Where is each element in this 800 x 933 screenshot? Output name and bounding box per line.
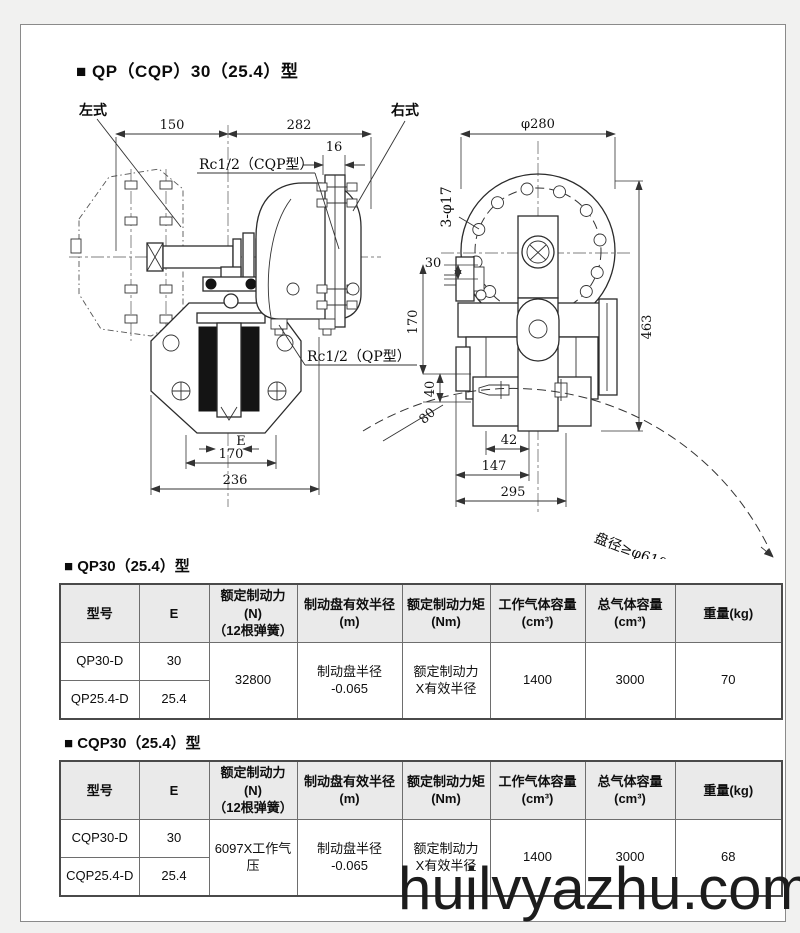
e-cell: 30 [139, 642, 209, 680]
label-left-type: 左式 [78, 102, 107, 118]
col-radius: 制动盘有效半径 (m) [297, 761, 402, 819]
left-view: 左式 右式 150 282 16 Rc1/2（CQP型） Rc1/2（QP型） … [69, 102, 419, 507]
page-title: ■ QP（CQP）30（25.4）型 [76, 57, 298, 82]
dim-30: 30 [425, 256, 442, 271]
label-right-type: 右式 [390, 102, 419, 118]
port-label-qp: Rc1/2（QP型） [307, 349, 411, 365]
section-title-cqp: ■ CQP30（25.4）型 [64, 732, 201, 753]
model-cell: QP25.4-D [60, 680, 139, 719]
radius-cell: 制动盘半径 -0.065 [297, 642, 402, 719]
dim-40: 40 [423, 381, 438, 398]
page-frame: ■ QP（CQP）30（25.4）型 [20, 24, 786, 922]
catalog-page: { "page": { "title": "■ QP（CQP）30（25.4）型… [0, 0, 800, 933]
dim-150: 150 [160, 118, 185, 133]
dim-42: 42 [501, 433, 518, 448]
table-row: QP30-D 30 32800 制动盘半径 -0.065 额定制动力 X有效半径… [60, 642, 782, 680]
col-total-volume: 总气体容量 (cm³) [585, 584, 675, 642]
radius-cell: 制动盘半径 -0.065 [297, 819, 402, 896]
col-radius: 制动盘有效半径 (m) [297, 584, 402, 642]
col-total-volume: 总气体容量 (cm³) [585, 761, 675, 819]
dim-463: 463 [640, 315, 655, 340]
watermark: huilvyazhu.com [398, 854, 800, 923]
qp-header-row: 型号 E 额定制动力(N) （12根弹簧） 制动盘有效半径 (m) 额定制动力矩… [60, 584, 782, 642]
model-cell: CQP25.4-D [60, 857, 139, 896]
work-volume-cell: 1400 [490, 642, 585, 719]
force-cell: 6097X工作气压 [209, 819, 297, 896]
col-e: E [139, 584, 209, 642]
torque-cell: 额定制动力 X有效半径 [402, 642, 490, 719]
cqp-header-row: 型号 E 额定制动力(N) （12根弹簧） 制动盘有效半径 (m) 额定制动力矩… [60, 761, 782, 819]
col-force: 额定制动力(N) （12根弹簧） [209, 761, 297, 819]
col-torque: 额定制动力矩 (Nm) [402, 761, 490, 819]
dim-16: 16 [326, 140, 343, 155]
col-work-volume: 工作气体容量 (cm³) [490, 761, 585, 819]
force-cell: 32800 [209, 642, 297, 719]
port-label-cqp: Rc1/2（CQP型） [199, 157, 314, 173]
qp-spec-table: 型号 E 额定制动力(N) （12根弹簧） 制动盘有效半径 (m) 额定制动力矩… [59, 583, 783, 720]
disc-diameter-note: 盘径≥φ610 [592, 529, 669, 559]
dim-170-right: 170 [406, 310, 421, 335]
dim-phi280: φ280 [521, 117, 555, 132]
col-model: 型号 [60, 761, 139, 819]
weight-cell: 70 [675, 642, 782, 719]
dim-236: 236 [223, 473, 248, 488]
dim-295: 295 [501, 485, 526, 500]
dim-3phi17: 3-φ17 [439, 186, 455, 227]
e-cell: 25.4 [139, 680, 209, 719]
e-cell: 25.4 [139, 857, 209, 896]
col-work-volume: 工作气体容量 (cm³) [490, 584, 585, 642]
technical-drawing: 左式 右式 150 282 16 Rc1/2（CQP型） Rc1/2（QP型） … [31, 89, 781, 559]
col-model: 型号 [60, 584, 139, 642]
total-volume-cell: 3000 [585, 642, 675, 719]
right-view: φ280 3-φ17 [363, 117, 773, 559]
table-row: CQP30-D 30 6097X工作气压 制动盘半径 -0.065 额定制动力 … [60, 819, 782, 857]
col-torque: 额定制动力矩 (Nm) [402, 584, 490, 642]
model-cell: CQP30-D [60, 819, 139, 857]
col-weight: 重量(kg) [675, 584, 782, 642]
dim-170-left: 170 [219, 447, 244, 462]
col-force: 额定制动力(N) （12根弹簧） [209, 584, 297, 642]
e-cell: 30 [139, 819, 209, 857]
col-e: E [139, 761, 209, 819]
dim-80: 80 [416, 405, 438, 427]
section-title-qp: ■ QP30（25.4）型 [64, 555, 190, 576]
col-weight: 重量(kg) [675, 761, 782, 819]
dim-147: 147 [482, 459, 507, 474]
dim-282: 282 [287, 118, 312, 133]
model-cell: QP30-D [60, 642, 139, 680]
